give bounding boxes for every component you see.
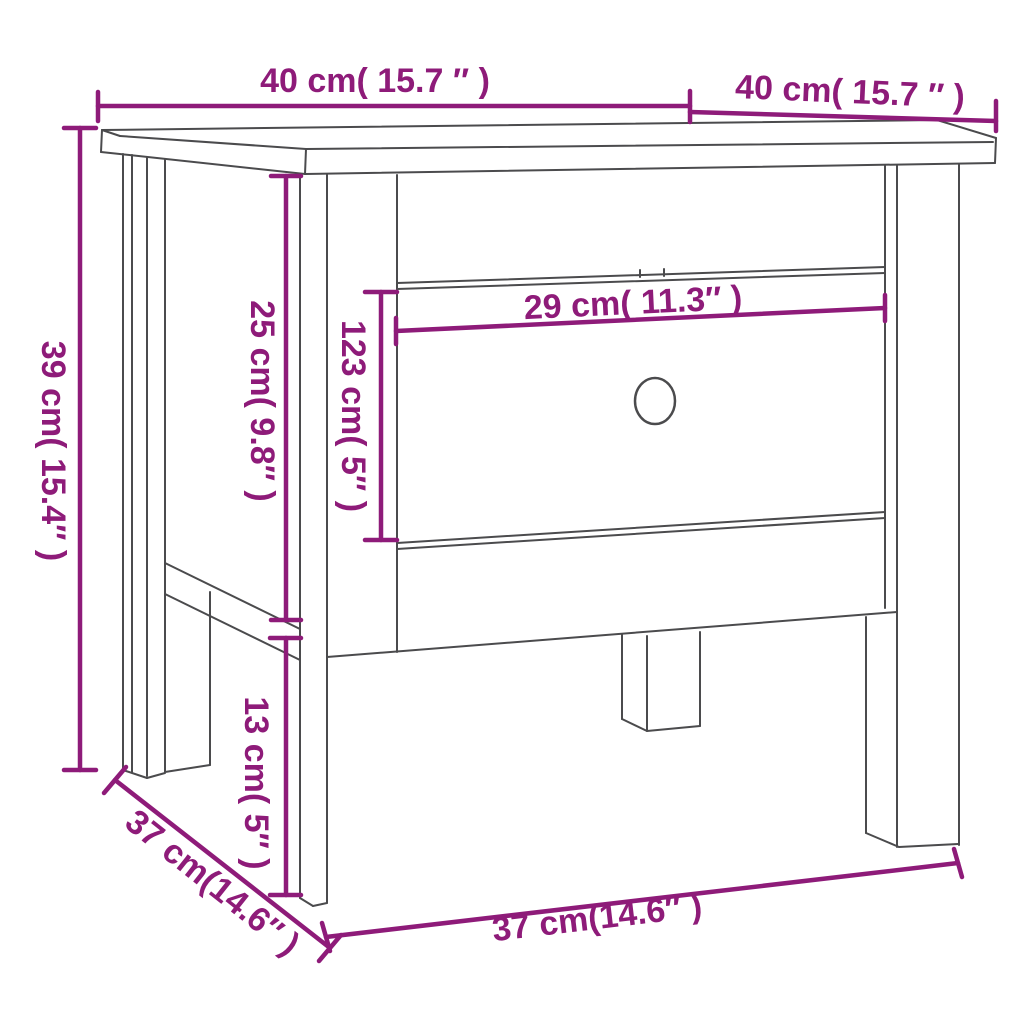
dimension-leg-clearance: 13 cm( 5″ ) [237,638,301,895]
dimension-line [115,780,330,948]
back-leg [622,632,700,731]
dimension-label-base-width: 37 cm(14.6″ ) [490,887,704,949]
dimension-annotations: 40 cm( 15.7 ″ ) 40 cm( 15.7 ″ ) 39 cm( 1… [34,62,996,963]
front-left-leg [300,174,327,906]
dimension-drawer-width: 29 cm( 11.3″ ) [396,279,885,344]
side-table-dimension-drawing: 40 cm( 15.7 ″ ) 40 cm( 15.7 ″ ) 39 cm( 1… [0,0,1024,1024]
dimension-overall-height: 39 cm( 15.4″ ) [34,128,96,770]
rear-left-leg [123,154,210,778]
dimension-tick [104,767,126,793]
dimension-base-depth: 37 cm(14.6″ ) [104,767,341,963]
dimension-label-drawer-width: 29 cm( 11.3″ ) [523,279,743,327]
dimension-label-base-depth: 37 cm(14.6″ ) [118,802,307,963]
diagram-canvas: 40 cm( 15.7 ″ ) 40 cm( 15.7 ″ ) 39 cm( 1… [0,0,1024,1024]
dimension-label-leg-clearance: 13 cm( 5″ ) [237,696,275,869]
table-top [101,120,996,174]
dimension-label-drawer-height: 123 cm( 5″ ) [334,320,372,512]
dimension-label-top-width: 40 cm( 15.7 ″ ) [260,62,490,100]
dimension-label-apron-height: 25 cm( 9.8″ ) [243,300,281,502]
dimension-base-width: 37 cm(14.6″ ) [322,849,962,951]
dimension-top-width: 40 cm( 15.7 ″ ) [98,62,690,122]
dimension-drawer-height: 123 cm( 5″ ) [334,292,397,540]
dimension-apron-height: 25 cm( 9.8″ ) [243,176,301,620]
front-apron-and-drawer [327,165,897,657]
dimension-label-overall-height: 39 cm( 15.4″ ) [34,341,72,561]
dimension-label-top-depth: 40 cm( 15.7 ″ ) [734,68,965,116]
drawer-knob-icon [635,378,675,424]
table-drawing [101,120,996,906]
left-side-rail [165,563,300,660]
